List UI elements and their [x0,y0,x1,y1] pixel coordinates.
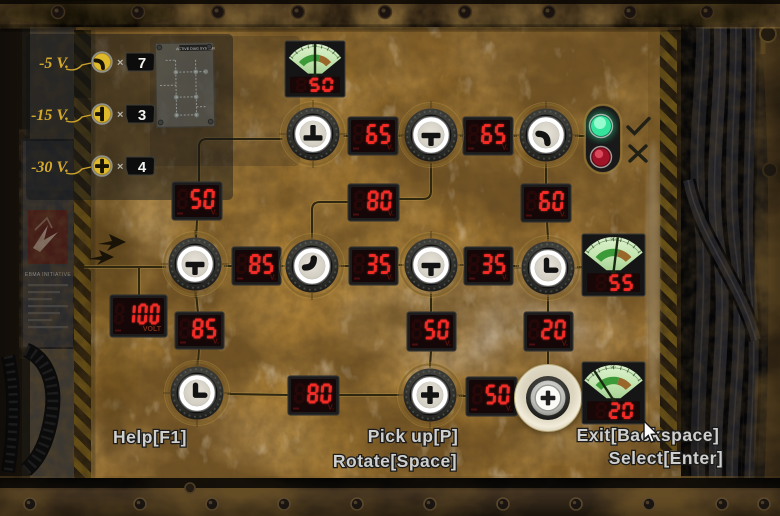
svg-text:×: × [117,109,123,121]
svg-text:V.: V. [445,339,451,348]
svg-text:V.: V. [562,339,568,348]
svg-text:V.: V. [387,273,393,282]
svg-text:V.: V. [328,403,334,412]
svg-text:V.: V. [387,143,393,152]
svg-text:Select[Enter]: Select[Enter] [609,448,723,468]
svg-text:V.: V. [502,273,508,282]
svg-text:V.: V. [506,404,512,413]
svg-text:V.: V. [560,210,566,219]
svg-text:Pick up[P]: Pick up[P] [368,426,459,446]
svg-text:Help[F1]: Help[F1] [113,427,187,447]
svg-text:3: 3 [138,107,146,124]
svg-text:90: 90 [611,237,617,242]
svg-text:V.: V. [388,209,394,218]
svg-text:7: 7 [138,55,146,72]
svg-text:90: 90 [611,365,617,370]
svg-text:-30 V.: -30 V. [31,159,69,176]
svg-text:-5 V.: -5 V. [39,55,69,72]
svg-text:V.: V. [211,208,217,217]
svg-text:Rotate[Space]: Rotate[Space] [333,451,457,471]
svg-text:-15 V.: -15 V. [31,107,69,124]
svg-text:V.: V. [270,273,276,282]
svg-text:×: × [117,57,123,69]
svg-text:V.: V. [502,143,508,152]
svg-text:4: 4 [138,159,147,176]
svg-text:V.: V. [213,337,219,346]
svg-text:×: × [117,161,123,173]
svg-text:VOLT: VOLT [143,326,162,333]
